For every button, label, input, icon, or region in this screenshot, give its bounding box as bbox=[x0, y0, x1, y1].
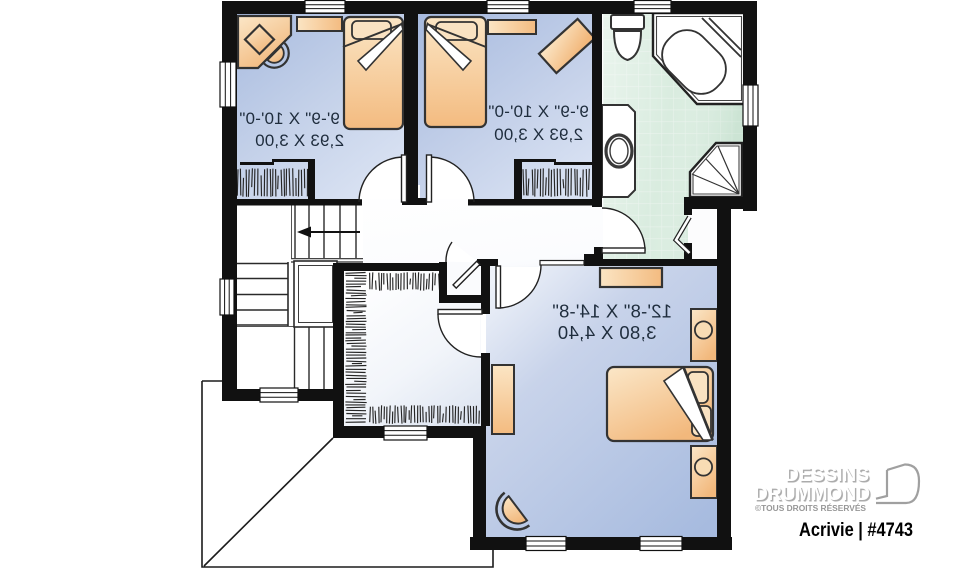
svg-text:©TOUS DROITS RÉSERVÉS: ©TOUS DROITS RÉSERVÉS bbox=[755, 504, 866, 513]
svg-text:9'-9" X 10'-0": 9'-9" X 10'-0" bbox=[239, 109, 340, 128]
svg-text:9'-9" X 10'-0": 9'-9" X 10'-0" bbox=[488, 102, 589, 121]
svg-text:Acrivie | #4743: Acrivie | #4743 bbox=[799, 519, 913, 541]
svg-text:DRUMMOND: DRUMMOND bbox=[754, 483, 870, 505]
svg-text:2,93 X 3,00: 2,93 X 3,00 bbox=[494, 125, 583, 144]
svg-text:12'-8" X 14'-8": 12'-8" X 14'-8" bbox=[552, 301, 672, 322]
svg-text:2,93 X 3,00: 2,93 X 3,00 bbox=[255, 131, 344, 150]
svg-text:3,80 X 4,40: 3,80 X 4,40 bbox=[557, 322, 656, 343]
